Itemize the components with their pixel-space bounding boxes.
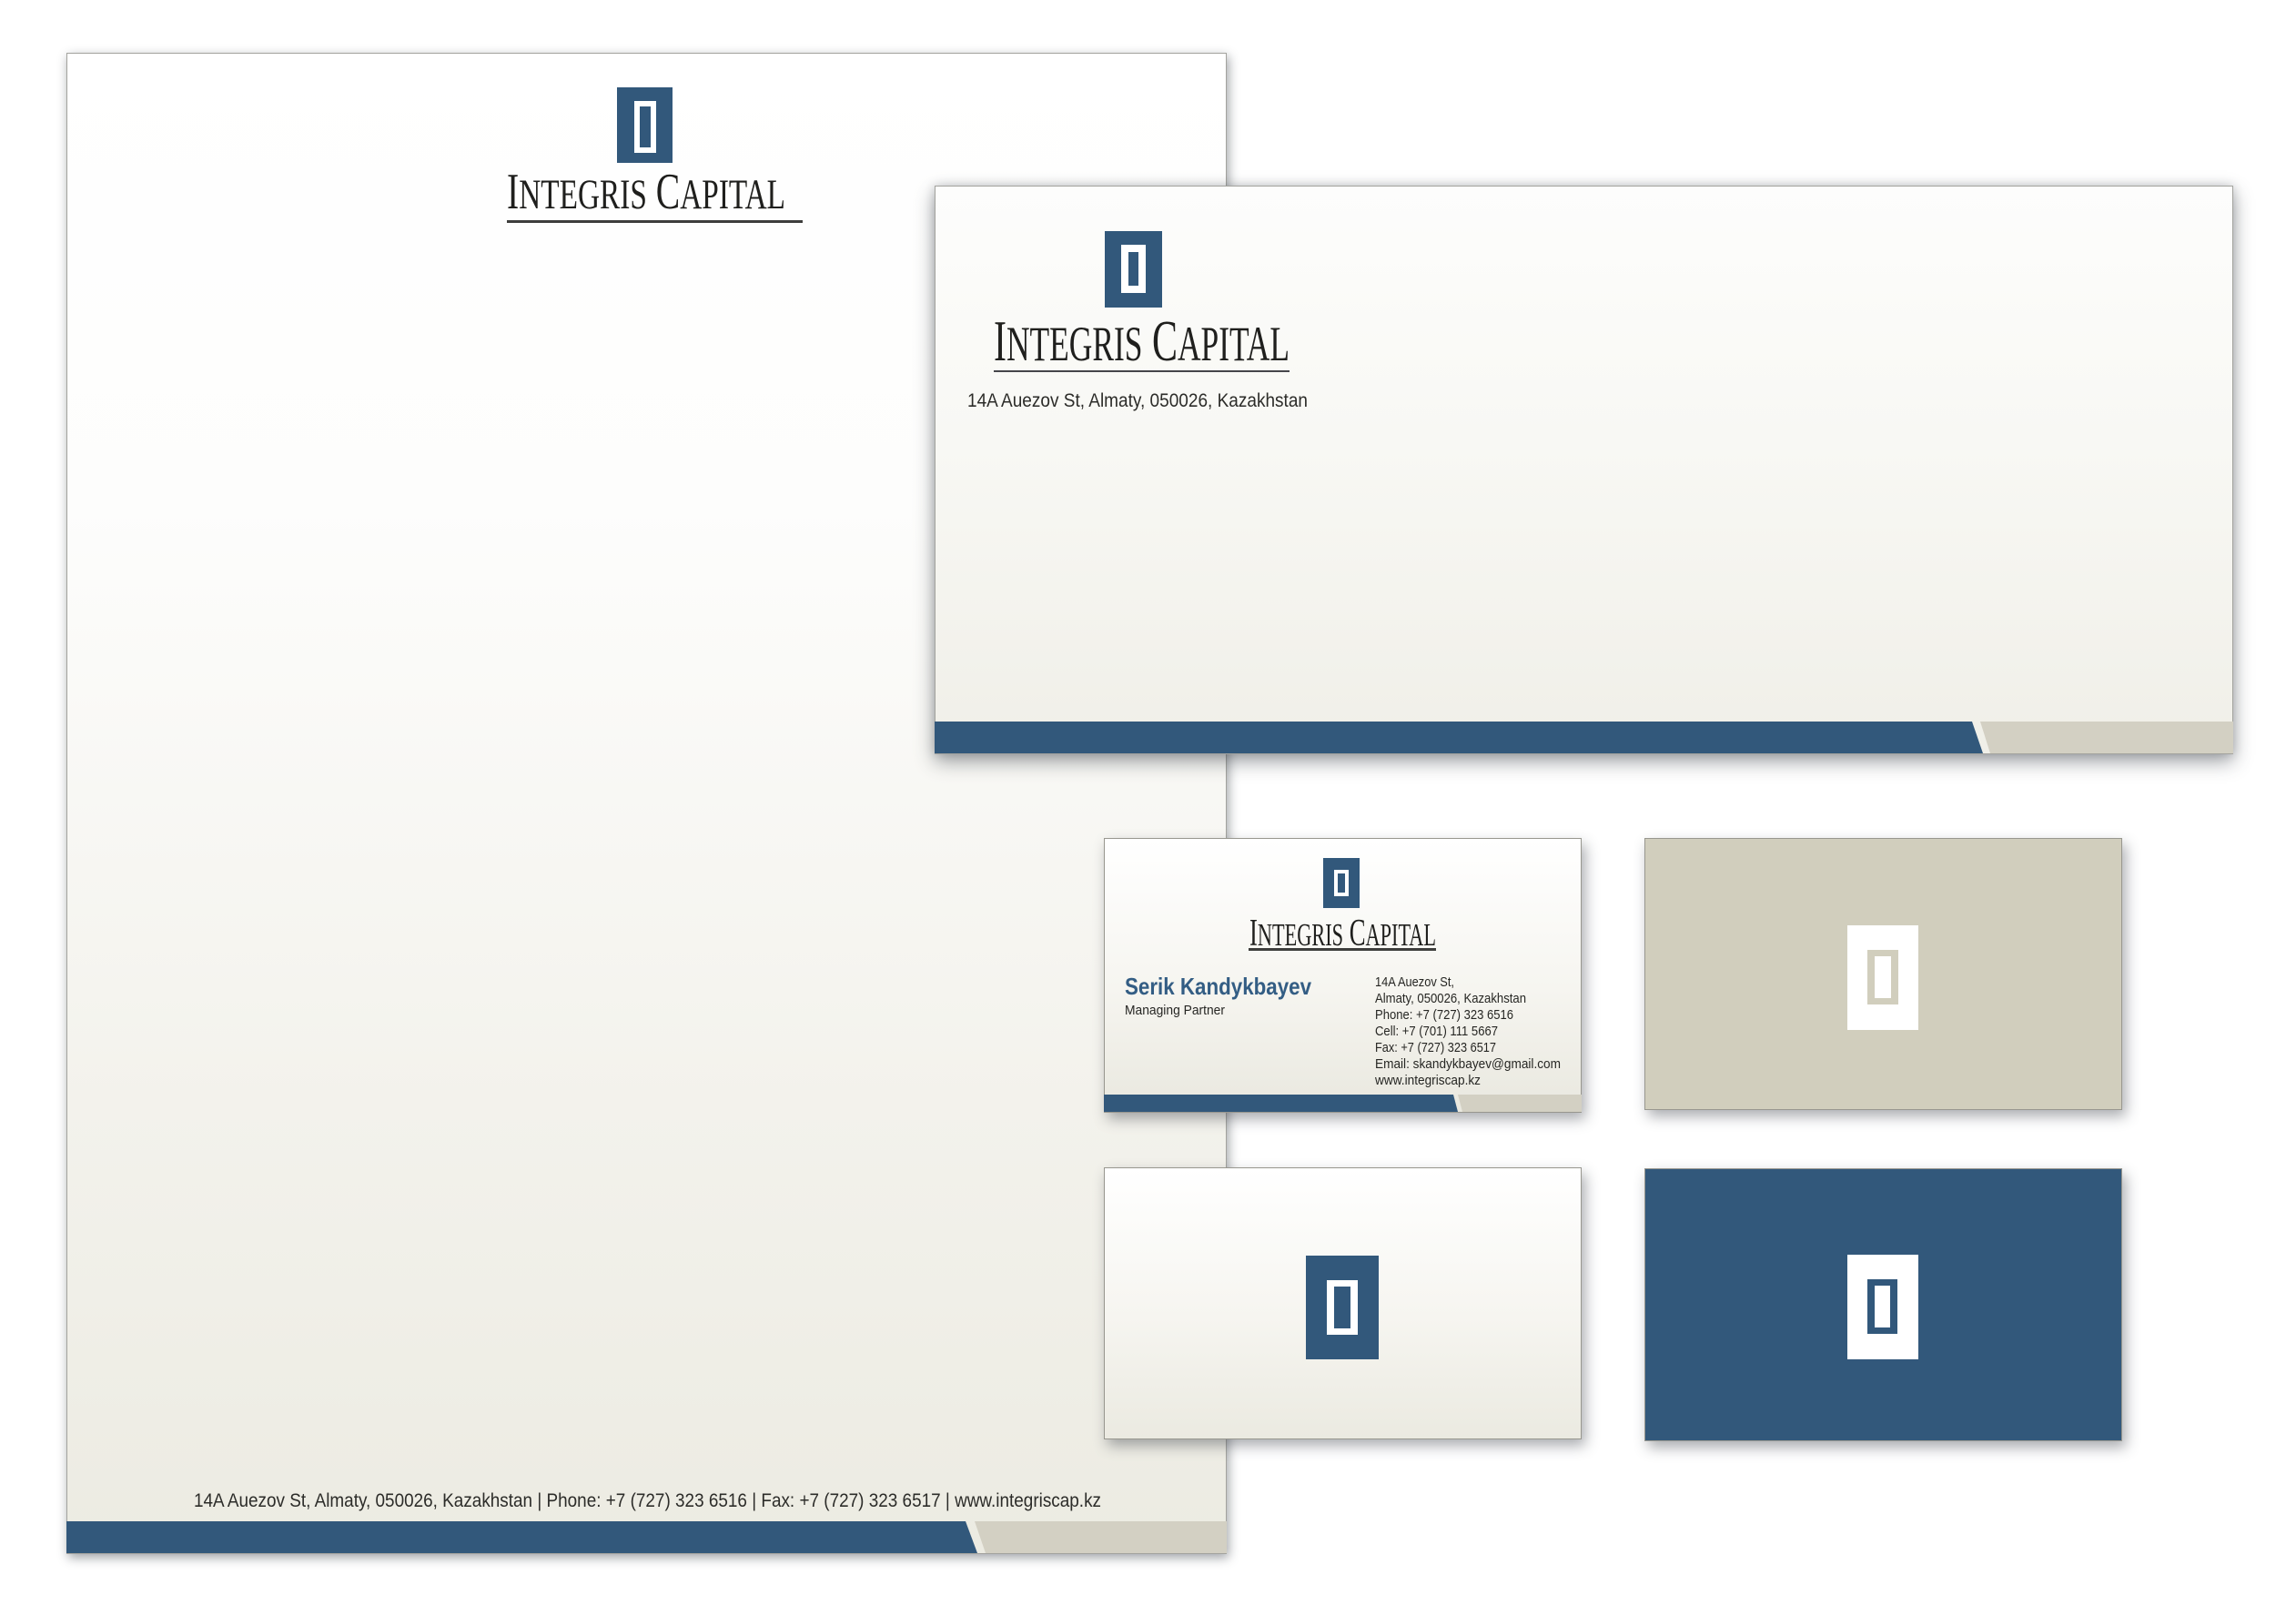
svg-text:Fax: +7 (727) 323 6517: Fax: +7 (727) 323 6517: [1375, 1040, 1496, 1055]
svg-text:INTEGRIS CAPITAL: INTEGRIS CAPITAL: [994, 308, 1290, 373]
svg-text:14A Auezov St, Almaty, 050026,: 14A Auezov St, Almaty, 050026, Kazakhsta…: [194, 1489, 1101, 1511]
svg-text:Serik Kandykbayev: Serik Kandykbayev: [1125, 973, 1311, 1000]
svg-text:14A Auezov St,: 14A Auezov St,: [1375, 974, 1454, 990]
svg-text:Phone: +7 (727) 323 6516: Phone: +7 (727) 323 6516: [1375, 1007, 1513, 1023]
svg-text:Almaty, 050026, Kazakhstan: Almaty, 050026, Kazakhstan: [1375, 991, 1526, 1006]
svg-text:INTEGRIS CAPITAL: INTEGRIS CAPITAL: [507, 164, 785, 220]
svg-text:www.integriscap.kz: www.integriscap.kz: [1374, 1073, 1481, 1088]
svg-text:Managing Partner: Managing Partner: [1125, 1003, 1225, 1018]
svg-text:14A Auezov St, Almaty, 050026,: 14A Auezov St, Almaty, 050026, Kazakhsta…: [967, 389, 1308, 411]
svg-text:Email: skandykbayev@gmail.com: Email: skandykbayev@gmail.com: [1375, 1056, 1561, 1072]
svg-text:Cell: +7 (701) 111 5667: Cell: +7 (701) 111 5667: [1375, 1024, 1498, 1039]
